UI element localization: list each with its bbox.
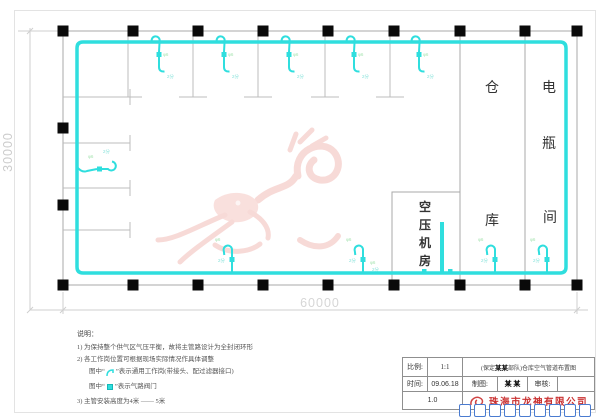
square-icon <box>489 404 501 417</box>
column <box>58 200 69 211</box>
note-item-5: 3) 主管安装高度为4米 —— 5米 <box>77 396 347 408</box>
square-icon <box>549 404 561 417</box>
note-item-4: 图中“ ”表示气路阀门 <box>77 381 347 393</box>
room-label-char: 仓 <box>485 82 499 96</box>
svg-text:2分: 2分 <box>349 257 357 264</box>
svg-text:φ6: φ6 <box>370 260 376 265</box>
room-label-char: 间 <box>543 212 557 226</box>
drafter-label: 制图: <box>463 377 498 391</box>
square-icon <box>504 404 516 417</box>
title-block: 比例: 1:1 (保定 某某 部队)仓库空气管道布置图 时间: 09.06.18… <box>402 357 595 410</box>
notes-heading: 说明： <box>77 328 347 340</box>
svg-text:φ6: φ6 <box>88 154 94 159</box>
structural-columns <box>58 26 583 291</box>
svg-text:2分: 2分 <box>362 73 370 80</box>
riser-stations: φ6 2分 φ6 2分 φ6 2分 φ6 2分 <box>215 237 550 273</box>
watermark-squares <box>459 404 591 417</box>
column <box>193 280 204 291</box>
riser-station: φ6 2分 <box>346 237 366 273</box>
room-label-char: 电 <box>542 82 556 96</box>
square-icon <box>519 404 531 417</box>
column <box>58 280 69 291</box>
compressor-feed-pipe: φ6 2分 <box>370 222 453 274</box>
note-item-1: 1) 为保持整个供气区气压平衡，故将主管路设计为全封闭环形 <box>77 342 347 354</box>
room-label-char: 库 <box>485 215 499 229</box>
valve-symbol-icon <box>107 384 113 390</box>
riser-station: φ6 2分 <box>215 237 235 273</box>
drafter-value: 某 某 <box>498 377 528 391</box>
room-label-char: 机 <box>419 237 431 249</box>
reviewer-label: 审核: <box>528 377 558 391</box>
svg-text:2分: 2分 <box>481 257 489 264</box>
column <box>258 280 269 291</box>
room-label-char: 瓶 <box>542 138 556 152</box>
column <box>520 280 531 291</box>
column <box>520 26 531 37</box>
svg-text:φ6: φ6 <box>423 52 429 57</box>
reviewer-value <box>558 377 594 391</box>
svg-text:2分: 2分 <box>297 73 305 80</box>
note-text: ”表示通用工作岗(带接头、配过滤器接口) <box>116 366 234 378</box>
svg-text:φ6: φ6 <box>530 237 536 242</box>
column <box>455 26 466 37</box>
tap-symbol-icon <box>106 368 115 377</box>
scale-value: 1:1 <box>428 358 463 376</box>
svg-text:2分: 2分 <box>232 73 240 80</box>
project-title-redacted: 某某 <box>495 362 508 372</box>
note-item-2: 2) 各工作岗位置可根据现场实际情况作具体调整 <box>77 354 347 366</box>
column <box>193 26 204 37</box>
width-dimension: 60000 <box>300 296 340 310</box>
svg-text:φ6: φ6 <box>163 52 169 57</box>
note-text: ”表示气路阀门 <box>115 381 157 393</box>
dimension-lines <box>18 28 588 314</box>
dragon-watermark <box>158 130 338 262</box>
column <box>323 280 334 291</box>
room-label-char: 空 <box>419 201 431 213</box>
column <box>572 26 583 37</box>
drawing-sheet: 30000 60000 <box>0 0 600 418</box>
riser-station: φ6 2分 <box>478 237 498 273</box>
svg-text:φ6: φ6 <box>228 52 234 57</box>
room-label-char: 房 <box>419 255 431 267</box>
column <box>455 280 466 291</box>
note-text: 图中“ <box>89 366 105 378</box>
svg-text:2分: 2分 <box>372 266 380 273</box>
height-dimension: 30000 <box>1 132 15 172</box>
square-icon <box>534 404 546 417</box>
project-title-text: (保定 <box>481 363 495 372</box>
column <box>323 26 334 37</box>
square-icon <box>459 404 471 417</box>
svg-text:φ6: φ6 <box>215 237 221 242</box>
main-pipe-ring <box>77 42 566 273</box>
notes-block: 说明： 1) 为保持整个供气区气压平衡，故将主管路设计为全封闭环形 2) 各工作… <box>77 328 347 408</box>
room-label-char: 压 <box>419 219 431 231</box>
date-value: 09.06.18 <box>428 377 463 391</box>
svg-text:2分: 2分 <box>167 73 175 80</box>
svg-text:φ6: φ6 <box>346 237 352 242</box>
svg-text:2分: 2分 <box>218 257 226 264</box>
svg-text:2分: 2分 <box>533 257 541 264</box>
date-label: 时间: <box>403 377 428 391</box>
square-icon <box>564 404 576 417</box>
svg-text:2分: 2分 <box>427 73 435 80</box>
scale-label: 比例: <box>403 358 428 376</box>
svg-text:φ6: φ6 <box>358 52 364 57</box>
column <box>58 123 69 134</box>
title-row-1: 比例: 1:1 (保定 某某 部队)仓库空气管道布置图 <box>403 358 594 377</box>
column <box>258 26 269 37</box>
column <box>572 280 583 291</box>
note-item-3: 图中“ ”表示通用工作岗(带接头、配过滤器接口) <box>77 366 347 378</box>
column <box>128 280 139 291</box>
column <box>389 280 400 291</box>
column <box>58 26 69 37</box>
column <box>128 26 139 37</box>
project-title: (保定 某某 部队)仓库空气管道布置图 <box>463 358 594 376</box>
square-icon <box>474 404 486 417</box>
version-value: 1.0 <box>403 392 463 409</box>
riser-station: φ6 2分 <box>530 237 550 273</box>
svg-text:2分: 2分 <box>103 148 111 155</box>
svg-text:φ6: φ6 <box>478 237 484 242</box>
svg-text:φ6: φ6 <box>293 52 299 57</box>
project-title-text: 部队)仓库空气管道布置图 <box>508 363 576 372</box>
left-branch-station: φ6 2分 <box>77 148 116 172</box>
column <box>389 26 400 37</box>
title-row-2: 时间: 09.06.18 制图: 某 某 审核: <box>403 377 594 392</box>
note-text: 图中“ <box>89 381 105 393</box>
square-icon <box>579 404 591 417</box>
left-bay-partitions <box>63 89 130 238</box>
